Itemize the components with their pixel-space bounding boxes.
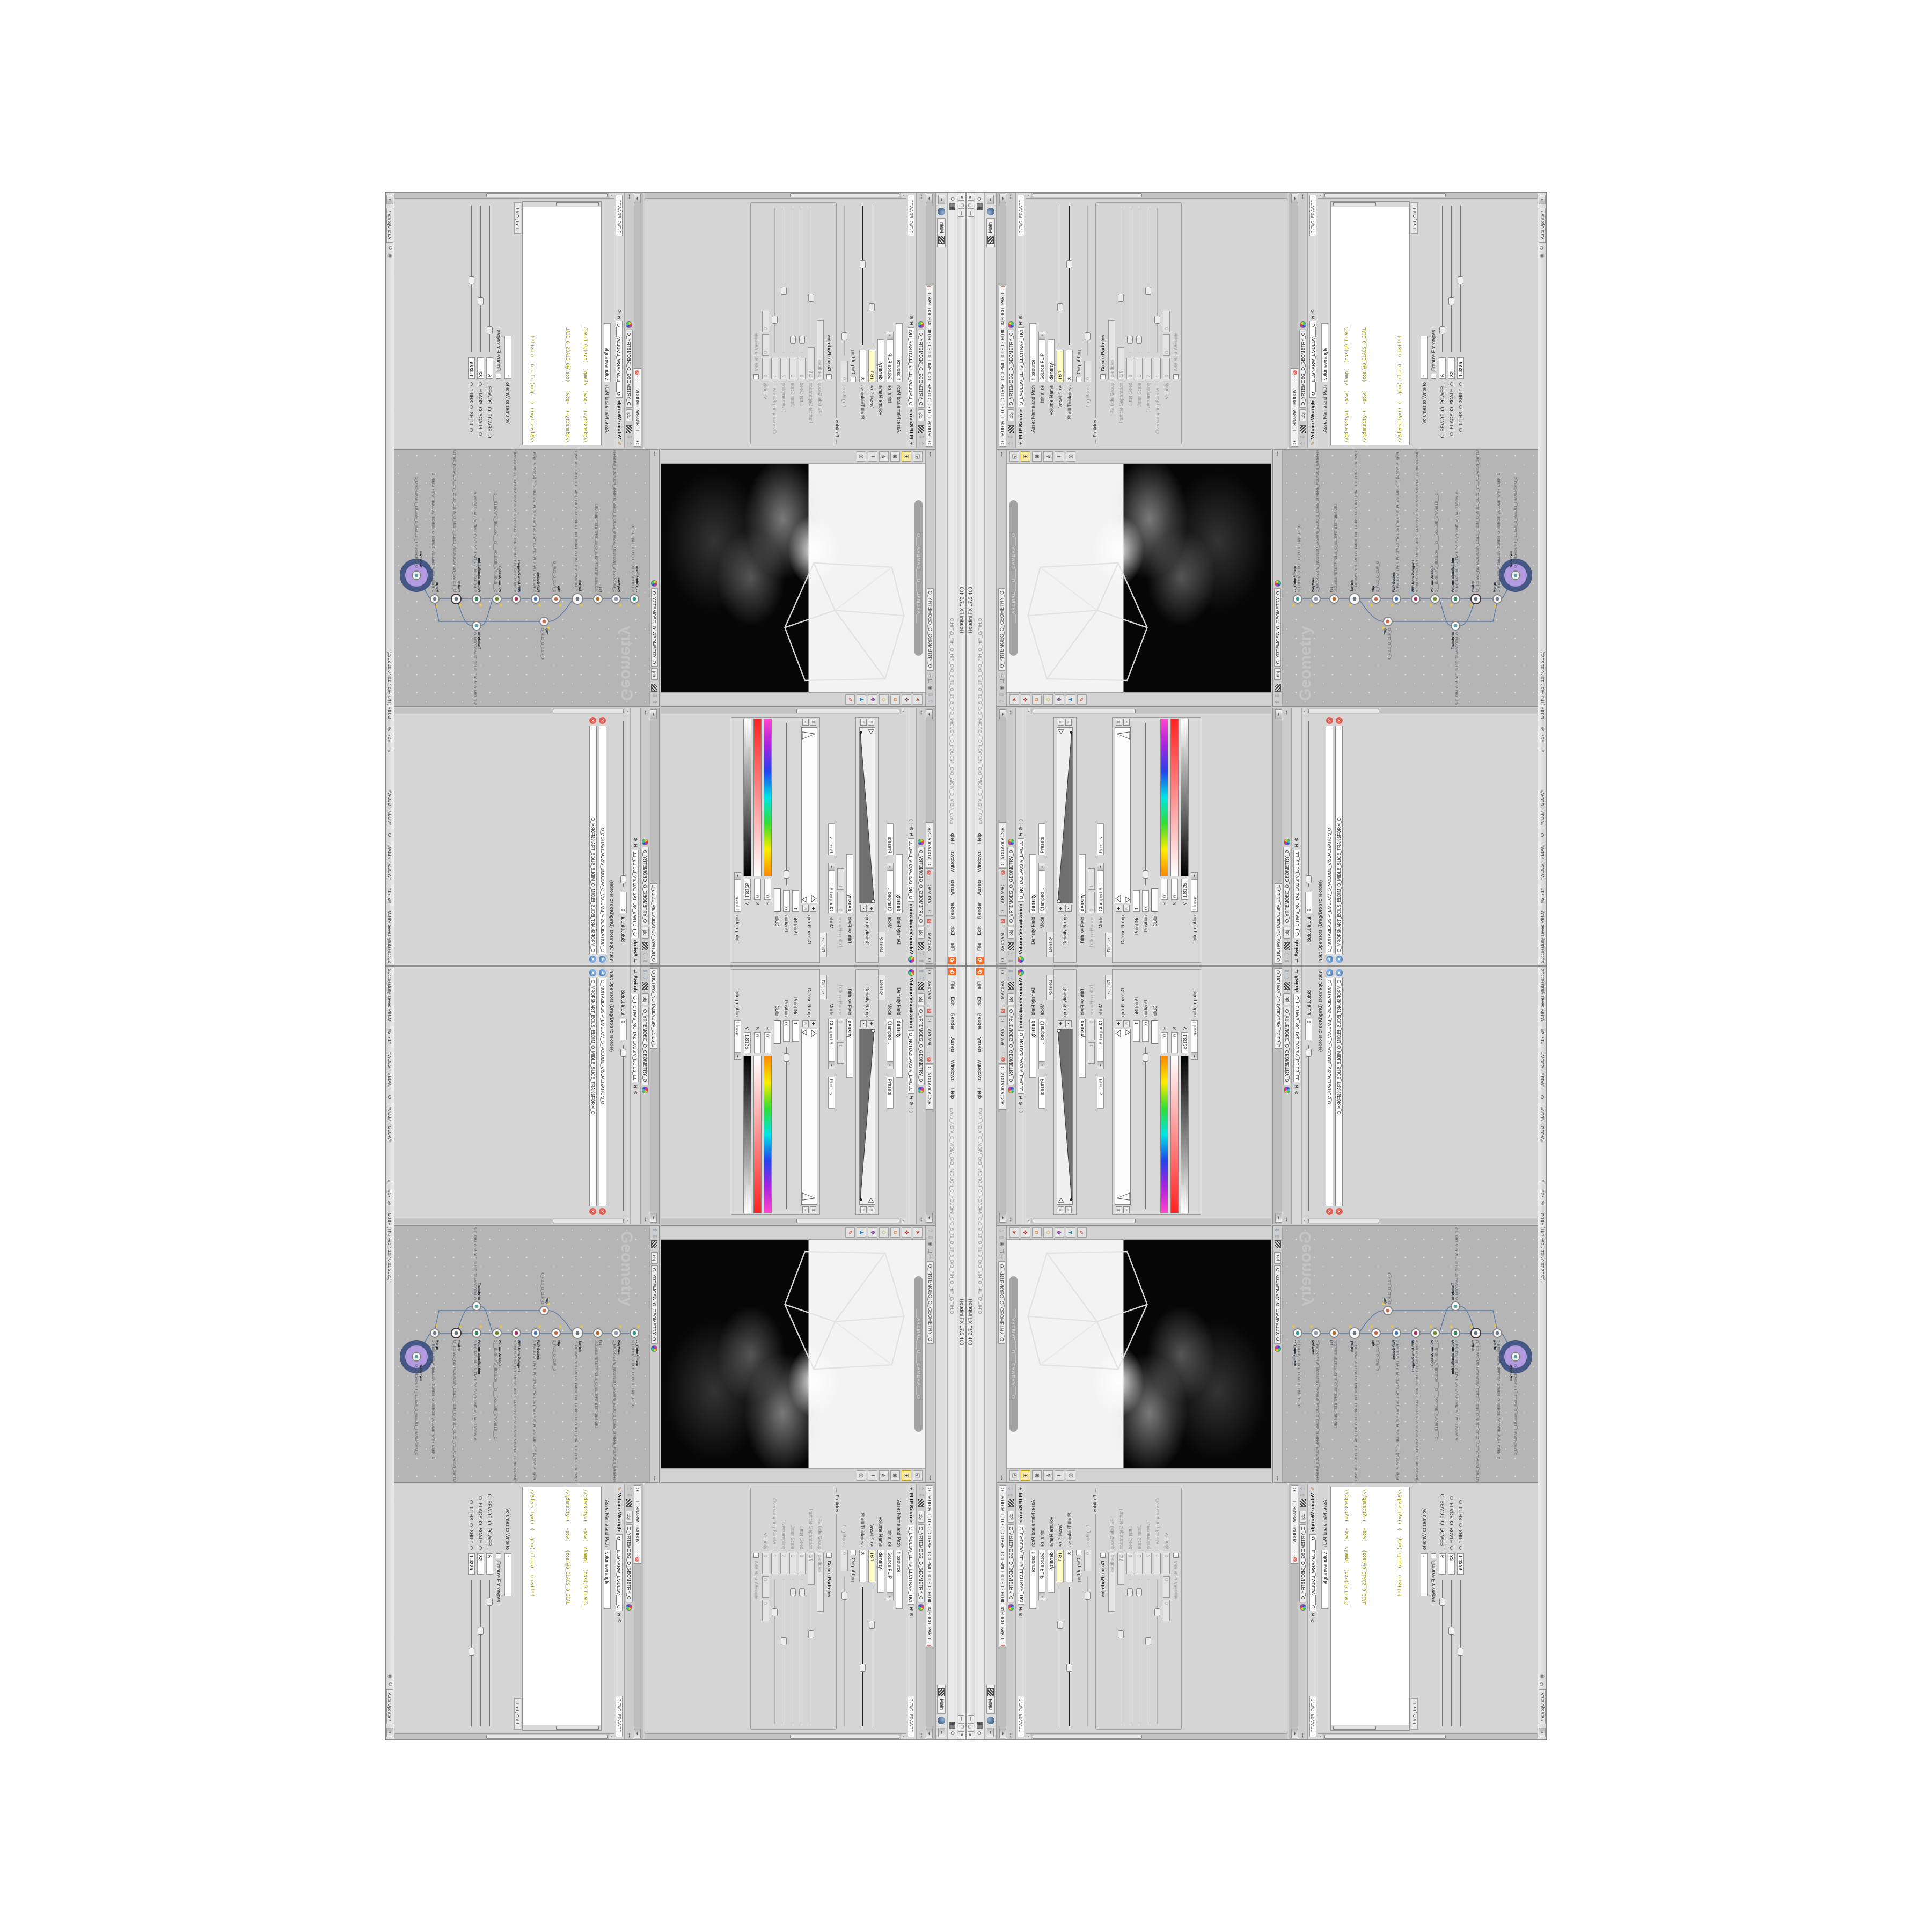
oversampling-bandwidth-input[interactable]: 1 — [771, 358, 778, 379]
jitter-seed-slider[interactable] — [799, 1579, 806, 1724]
ramp-delete-button[interactable]: ✕ — [860, 1020, 867, 1027]
nav-down-icon[interactable]: ⇩ — [626, 435, 633, 440]
close-icon[interactable]: ✕ — [927, 919, 932, 923]
select-input-slider[interactable] — [620, 1045, 627, 1211]
s-input[interactable]: 0 — [1171, 1032, 1178, 1053]
nav-down-icon[interactable]: ⇩ — [1274, 693, 1282, 698]
nav-down-icon[interactable]: ⇩ — [1007, 1492, 1015, 1497]
menu-edit[interactable]: Edit — [977, 923, 983, 939]
color-swatch[interactable] — [774, 1020, 781, 1044]
ramp-flip-button[interactable]: ▽ — [1123, 719, 1130, 726]
menu-assets[interactable]: Assets — [977, 876, 983, 899]
jitter-scale-input[interactable]: 0 — [1136, 358, 1143, 379]
interpolation-dropdown[interactable]: Linear — [1191, 1020, 1198, 1052]
nav-down-icon[interactable]: ⇩ — [626, 1492, 633, 1497]
nav-up-icon[interactable]: ⇧ — [918, 441, 925, 446]
color-swatch[interactable] — [774, 888, 781, 912]
close-button[interactable]: ✕ — [958, 194, 965, 201]
shift-slider[interactable] — [468, 206, 475, 352]
scrollbar[interactable]: ▲ — [645, 193, 906, 199]
light-icon[interactable]: ☀ — [1055, 1470, 1064, 1481]
density-folder-tab[interactable]: Density — [1046, 975, 1053, 1000]
volume-name-input[interactable]: density — [1048, 1550, 1055, 1593]
oversampling-slider[interactable] — [780, 1579, 787, 1724]
info-icon[interactable]: ⓘ — [1018, 1108, 1024, 1113]
point-no-input[interactable]: 1 — [792, 890, 799, 912]
menu-render[interactable]: Render — [949, 1009, 955, 1034]
ramp-expand-button[interactable]: ⊞ — [1116, 1206, 1122, 1213]
oversampling-input[interactable]: 2 — [780, 1553, 787, 1574]
select-tool-icon[interactable]: ➤ — [913, 1227, 923, 1238]
position-slider[interactable] — [1142, 1047, 1149, 1209]
help-icon[interactable]: H — [1310, 1613, 1315, 1617]
fog-boost-input[interactable]: 0 — [1084, 361, 1091, 382]
reorder-left-icon[interactable]: ◀ — [599, 969, 606, 976]
density-ramp-widget[interactable] — [1057, 1029, 1073, 1205]
select-input-field[interactable]: 0 — [620, 1019, 627, 1040]
gear-icon[interactable]: ⚙ — [909, 315, 914, 319]
select-tool-icon[interactable]: ➤ — [1009, 694, 1019, 705]
color-wheel-icon[interactable] — [642, 839, 649, 845]
nav-up-icon[interactable]: ⇧ — [1299, 1486, 1307, 1491]
close-icon[interactable]: ✕ — [927, 1057, 932, 1062]
initialize-dropdown[interactable]: Source FLIP — [1038, 1550, 1045, 1593]
scrollbar[interactable]: ▲ — [1318, 193, 1538, 199]
gear-icon[interactable]: ⚙ — [1310, 309, 1316, 313]
position-input[interactable]: 0 — [1142, 1020, 1149, 1042]
delete-icon[interactable]: ✕ — [1336, 1208, 1343, 1215]
saturation-gradient-bar[interactable] — [753, 719, 762, 876]
nav-down-icon[interactable]: ⇩ — [918, 952, 925, 957]
cube-icon[interactable]: ▢ — [927, 679, 933, 684]
mode-dropdown[interactable]: Clamped R... — [828, 1019, 835, 1062]
particle-group-input[interactable]: particles — [1108, 320, 1115, 379]
op-path-field[interactable]: O_MROFSNART_ECILS_ELDIM_O_MIDLE_SLICE_TR… — [589, 726, 597, 954]
viewport-render[interactable]: ___AREMAC___O___CAMERA___O — [661, 464, 925, 692]
power-input[interactable]: 6 — [1439, 357, 1446, 379]
node-name-field[interactable]: O_HCTIWS_NOITAZILAUSIV_ECILS_EL — [1293, 850, 1300, 938]
breadcrumb[interactable]: O_YRTEMOEG_O_GEOMETRY_O — [927, 588, 934, 671]
menu-windows[interactable]: Windows — [977, 847, 983, 876]
asset-path-field[interactable]: C:/O/O_ERAWTF... — [908, 1696, 915, 1737]
target-icon[interactable]: ✛ — [999, 1255, 1005, 1260]
restore-button[interactable]: ❐ — [968, 202, 974, 209]
position-slider[interactable] — [783, 723, 790, 885]
color-wheel-icon[interactable] — [1008, 321, 1014, 328]
particle-separation-input[interactable]: 1/9 — [1117, 1553, 1124, 1585]
point-no-input[interactable]: 1 — [792, 1020, 799, 1042]
auto-update-dropdown[interactable]: Auto Update▾ — [1539, 208, 1546, 243]
density-folder-tab[interactable]: Density — [879, 932, 885, 957]
nav-up-icon[interactable]: ⇧ — [651, 700, 658, 705]
fog-boost-slider[interactable] — [841, 206, 848, 355]
ramp-flip-button[interactable]: ▽ — [802, 719, 809, 726]
close-button[interactable]: ✕ — [958, 1731, 965, 1738]
pane-splitter-handle[interactable]: ◂▸ — [999, 1729, 1006, 1738]
volume-name-input[interactable]: density — [877, 1550, 884, 1593]
pane-splitter-handle[interactable]: ◂▸ — [999, 194, 1006, 203]
scale-tool-icon[interactable]: ◇ — [879, 1227, 889, 1238]
nav-down-icon[interactable]: ⇩ — [1283, 952, 1291, 957]
jitter-scale-slider[interactable] — [1136, 208, 1143, 353]
v-input[interactable]: 1.8125 — [744, 1032, 751, 1053]
fog-boost-slider[interactable] — [1084, 1577, 1091, 1726]
color-swatch[interactable] — [1151, 888, 1158, 912]
close-icon[interactable]: ✕ — [1293, 1557, 1297, 1562]
menu-windows[interactable]: Windows — [949, 847, 955, 876]
select-input-field[interactable]: 0 — [1305, 892, 1312, 913]
pane-tab-switch[interactable]: O_HCTIWS_NOITAZILAUSIV_ECILS_EL...✕ — [1275, 883, 1282, 964]
scrollbar[interactable] — [523, 1725, 601, 1730]
hue-gradient-bar[interactable] — [764, 719, 772, 876]
op-path-field[interactable]: O_NOITAZILAUSIV_EMULOV_O_VOLUME_VISUALIZ… — [1326, 978, 1333, 1206]
ramp-add-button[interactable]: ✚ — [1058, 905, 1064, 912]
globe-icon[interactable] — [938, 1717, 946, 1724]
ramp-add-button[interactable]: ✚ — [1116, 1020, 1122, 1027]
vex-code-editor[interactable]: //@density=( -pow( clamp( (cos(@O_ELACS_… — [1330, 1487, 1410, 1731]
reorder-left-icon[interactable]: ◀ — [590, 956, 597, 963]
saturation-gradient-bar[interactable] — [1170, 1056, 1179, 1213]
reorder-left-icon[interactable]: ◀ — [599, 956, 606, 963]
paint-tool-icon[interactable]: ✎ — [1077, 694, 1087, 705]
spinner-icon[interactable]: ◂▸ — [828, 1062, 835, 1069]
menu-render[interactable]: Render — [977, 1009, 983, 1034]
pin-icon[interactable]: ⊶ — [927, 1475, 933, 1480]
move-tool-icon[interactable]: ✛ — [902, 694, 911, 705]
position-input[interactable]: 0 — [1142, 890, 1149, 912]
pin-icon[interactable]: ⊶ — [626, 194, 632, 199]
help-icon[interactable]: H — [1294, 844, 1299, 847]
pane-splitter-handle[interactable]: ◂▸ — [1291, 1729, 1298, 1738]
nav-up-icon[interactable]: ⇧ — [1274, 1227, 1282, 1232]
pane-tab-flip[interactable]: O_EMULOV_LEHS_ELCITRAP_TICILPMI_DIULF_O_… — [999, 286, 1006, 447]
gear-icon[interactable]: ⚙ — [1310, 1619, 1316, 1623]
velocity-input-z[interactable]: 0 — [762, 311, 769, 332]
pane-tab-flip[interactable]: O_EMULOV_LEHS_ELCITRAP_TICILPMI_DIULF_O_… — [926, 1485, 933, 1646]
jitter-seed-input[interactable]: 0 — [1126, 358, 1133, 379]
enforce-prototypes-checkbox[interactable] — [1431, 374, 1436, 379]
velocity-input-y[interactable]: 0 — [762, 334, 769, 356]
gear-icon[interactable]: ⚙ — [1018, 1613, 1024, 1617]
pane-tab-wrangle[interactable]: O____ELGNARW_EMULOV____O✕ — [634, 368, 641, 447]
network-chip[interactable]: obj — [626, 1511, 633, 1522]
scrollbar[interactable]: ▲ — [1302, 1218, 1538, 1224]
target-icon[interactable]: ✛ — [999, 673, 1005, 677]
gear-icon[interactable]: ⚙ — [1294, 837, 1300, 841]
network-chip[interactable]: obj — [1274, 668, 1281, 679]
shell-thickness-slider[interactable] — [859, 206, 866, 345]
pin-icon[interactable]: ⊶ — [1284, 710, 1290, 715]
nav-up-icon[interactable]: ⇧ — [927, 1228, 934, 1233]
h-input[interactable]: 0 — [764, 879, 771, 900]
pin-icon[interactable]: ⊶ — [1275, 1476, 1280, 1481]
snap-grid-icon[interactable]: ⊞ — [902, 451, 911, 462]
spinner-icon[interactable]: ◂▸ — [1038, 1593, 1045, 1600]
menu-windows[interactable]: Windows — [949, 1056, 955, 1085]
nav-down-icon[interactable]: ⇩ — [998, 1235, 1006, 1240]
pin-icon[interactable]: ⊶ — [1008, 1217, 1014, 1222]
viewport-render[interactable]: ___AREMAC___O___CAMERA___O — [1007, 1240, 1271, 1468]
shell-thickness-slider[interactable] — [859, 1587, 866, 1726]
node-name-field[interactable]: O_NOITAZILAUSIV_EMULO — [1018, 1030, 1024, 1093]
minimize-button[interactable]: — — [968, 1715, 974, 1722]
presets-button[interactable]: Presets — [1038, 1077, 1045, 1109]
help-icon[interactable]: H — [1018, 833, 1023, 837]
breadcrumb[interactable]: O_YRTEMOEG_O_GEOMETRY_O — [1007, 330, 1014, 408]
voxel-size-input[interactable]: 1/27 — [868, 350, 875, 382]
ramp-flip-button[interactable]: △ — [860, 719, 867, 726]
interpolation-dropdown[interactable]: Linear — [734, 880, 741, 912]
jitter-scale-input[interactable]: 0 — [789, 1553, 796, 1574]
vex-code-editor[interactable]: //@density=( -pow( clamp( (cos(@O_ELACS_… — [1330, 201, 1410, 445]
scrollbar[interactable] — [1331, 202, 1409, 207]
jitter-seed-input[interactable]: 0 — [799, 1553, 806, 1574]
velocity-input-y[interactable]: 0 — [1163, 334, 1170, 356]
jitter-seed-slider[interactable] — [1126, 208, 1133, 353]
pane-splitter-handle[interactable]: ◂▸ — [386, 195, 393, 204]
handles-tool-icon[interactable]: ✥ — [868, 1227, 877, 1238]
delete-icon[interactable]: ✕ — [590, 717, 597, 724]
layout-grid-icon[interactable] — [949, 1722, 955, 1729]
ramp-expand-button[interactable]: ⊞ — [868, 1206, 874, 1213]
handles-tool-icon[interactable]: ✥ — [1055, 694, 1064, 705]
hue-gradient-bar[interactable] — [764, 1056, 772, 1213]
shell-thickness-input[interactable]: 3 — [859, 1550, 866, 1582]
op-path-field[interactable]: O_MROFSNART_ECILS_ELDIM_O_MIDLE_SLICE_TR… — [1335, 978, 1343, 1206]
help-icon[interactable]: H — [1310, 316, 1315, 319]
scale-input[interactable]: 32 — [1448, 357, 1455, 379]
viewport-render[interactable]: ___AREMAC___O___CAMERA___O — [1007, 464, 1271, 692]
light-icon[interactable]: ☀ — [1055, 451, 1064, 462]
pane-tab-visualization[interactable]: O_NOITAZILAUSIV... — [926, 822, 933, 867]
scrollbar[interactable]: ▲ — [394, 193, 614, 199]
pane-splitter-handle[interactable]: ◂▸ — [650, 709, 657, 719]
particle-group-input[interactable]: particles — [817, 1553, 824, 1612]
network-chip[interactable]: obj — [1007, 993, 1014, 1005]
viewport-render[interactable]: ___AREMAC___O___CAMERA___O — [661, 1240, 925, 1468]
power-slider[interactable] — [486, 206, 493, 352]
ramp-delete-button[interactable]: ✕ — [1123, 1020, 1130, 1027]
nav-up-icon[interactable]: ⇧ — [1007, 958, 1015, 963]
wire-mode-icon[interactable]: ◭ — [879, 1470, 889, 1481]
oversampling-bandwidth-input[interactable]: 1 — [771, 1553, 778, 1574]
spinner-icon[interactable]: ◂▸ — [1038, 332, 1045, 339]
close-icon[interactable]: ✕ — [927, 1645, 932, 1646]
help-icon[interactable]: H — [617, 1613, 622, 1617]
scrollbar[interactable]: ▲ — [1026, 1218, 1271, 1224]
spinner-icon[interactable]: ◂▸ — [1038, 863, 1045, 870]
asset-path-field[interactable]: C:/O/O_ERAWTF... — [616, 1696, 623, 1737]
pin-icon[interactable]: ⊶ — [927, 452, 933, 457]
network-chip[interactable]: obj — [1283, 927, 1290, 938]
s-input[interactable]: 0 — [1171, 879, 1178, 900]
nav-up-icon[interactable]: ⇧ — [998, 699, 1006, 704]
paint-tool-icon[interactable]: ✎ — [1077, 1227, 1087, 1238]
scrollbar[interactable]: ▲ — [1026, 193, 1287, 199]
diffuse-range-min[interactable]: 0 — [837, 892, 844, 913]
scale-slider[interactable] — [1448, 1580, 1455, 1726]
scrollbar[interactable]: ▲ — [1318, 1733, 1538, 1739]
diffuse-range-max[interactable]: 1 — [837, 868, 844, 890]
value-gradient-bar[interactable] — [1181, 1056, 1189, 1213]
ramp-expand-button[interactable]: ⊞ — [868, 719, 874, 726]
density-folder-tab[interactable]: Density — [1046, 932, 1053, 957]
nav-up-icon[interactable]: ⇧ — [626, 441, 633, 446]
restore-button[interactable]: ❐ — [958, 1723, 965, 1730]
ramp-delete-button[interactable]: ✕ — [802, 905, 809, 912]
camera-icon[interactable]: ◉ — [927, 1242, 933, 1246]
menu-file[interactable]: File — [949, 977, 955, 993]
op-path-field[interactable]: O_MROFSNART_ECILS_ELDIM_O_MIDLE_SLICE_TR… — [1335, 726, 1343, 954]
voxel-size-input[interactable]: 1/27 — [868, 1550, 875, 1582]
target-icon[interactable]: ✛ — [927, 1255, 933, 1260]
info-icon[interactable]: ⓘ — [1018, 819, 1024, 824]
shade-mode-icon[interactable]: ◉ — [1032, 451, 1042, 462]
layout-grid-icon[interactable] — [977, 203, 983, 210]
gear-icon[interactable]: ⚙ — [633, 1091, 639, 1095]
pin-icon[interactable]: ⊶ — [1275, 451, 1280, 456]
gear-icon[interactable]: ⚙ — [617, 309, 623, 313]
initialize-dropdown[interactable]: Source FLIP — [1038, 339, 1045, 382]
nav-up-icon[interactable]: ⇧ — [626, 1486, 633, 1491]
close-icon[interactable]: ✕ — [635, 370, 640, 375]
volumes-to-write-input[interactable]: * — [1421, 1553, 1428, 1596]
shade-mode-icon[interactable]: ◉ — [890, 1470, 900, 1481]
ramp-delete-button[interactable]: ✕ — [1065, 1020, 1072, 1027]
network-chip[interactable]: obj — [1007, 409, 1014, 421]
nav-up-icon[interactable]: ⇧ — [1283, 969, 1291, 974]
close-icon[interactable]: ✕ — [1001, 870, 1005, 875]
help-icon[interactable]: H — [1018, 321, 1023, 325]
node-name-field[interactable]: O_NOITAZILAUSIV_EMULO — [908, 1030, 915, 1093]
velocity-input-z[interactable]: 0 — [1163, 311, 1170, 332]
pane-splitter-handle[interactable]: ◂▸ — [634, 1729, 641, 1738]
op-path-field[interactable]: O_NOITAZILAUSIV_EMULOV_O_VOLUME_VISUALIZ… — [599, 726, 606, 954]
spinner-icon[interactable]: ◂▸ — [734, 1052, 741, 1060]
gear-icon[interactable]: ⚙ — [633, 837, 639, 841]
diffuse-field-input[interactable]: density — [846, 1019, 853, 1078]
s-input[interactable]: 0 — [754, 879, 761, 900]
breadcrumb[interactable]: O_YRTEMOEG_O_GEOMETRY_O — [1299, 1524, 1306, 1602]
nav-up-icon[interactable]: ⇧ — [998, 1228, 1006, 1233]
globe-icon[interactable] — [938, 208, 946, 215]
network-chip[interactable]: obj — [918, 1511, 925, 1522]
h-input[interactable]: 0 — [1161, 1032, 1168, 1053]
pane-splitter-handle[interactable]: ◂▸ — [999, 709, 1006, 719]
spinner-icon[interactable]: ◂▸ — [887, 332, 894, 339]
pane-tab-camera[interactable]: O___AREMAC__...✕ — [999, 868, 1006, 916]
ramp-expand-button[interactable]: ⊞ — [810, 719, 816, 726]
asset-path-field[interactable]: C:/O/O_ERAWTF... — [1018, 195, 1024, 236]
move-tool-icon[interactable]: ✛ — [1021, 694, 1030, 705]
ramp-add-button[interactable]: ✚ — [1116, 905, 1122, 912]
jitter-scale-input[interactable]: 0 — [1136, 1553, 1143, 1574]
pin-icon[interactable]: ⊶ — [652, 1476, 657, 1481]
position-input[interactable]: 0 — [783, 1020, 790, 1042]
pane-tab-flip[interactable]: O_EMULOV_LEHS_ELCITRAP_TICILPMI_DIULF_O_… — [926, 286, 933, 447]
breadcrumb[interactable]: O_YRTEMOEG_O_GEOMETRY_O — [918, 1007, 925, 1085]
pane-splitter-handle[interactable]: ◂▸ — [650, 1213, 657, 1223]
scrollbar[interactable]: ▲ — [394, 1733, 614, 1739]
menu-help[interactable]: Help — [949, 830, 955, 848]
pin-icon[interactable]: ⊶ — [642, 1217, 648, 1222]
pane-tab-mantra[interactable]: O___ARTNAM__...✕ — [999, 917, 1006, 964]
close-icon[interactable]: ✕ — [1001, 919, 1005, 923]
create-particles-checkbox[interactable] — [827, 374, 832, 379]
camera-lock-icon[interactable]: ◎ — [1066, 1470, 1075, 1481]
nav-down-icon[interactable]: ⇩ — [1007, 975, 1015, 980]
diffuse-range-max[interactable]: 1 — [1088, 868, 1095, 890]
help-icon[interactable]: H — [1018, 1607, 1023, 1611]
vex-code-editor[interactable]: //@density=( -pow( clamp( (cos(@O_ELACS_… — [522, 201, 602, 445]
shell-thickness-input[interactable]: 3 — [1066, 1550, 1073, 1582]
menu-windows[interactable]: Windows — [977, 1056, 983, 1085]
op-path-field[interactable]: O_MROFSNART_ECILS_ELDIM_O_MIDLE_SLICE_TR… — [589, 978, 597, 1206]
network-chip[interactable]: obj — [1283, 993, 1290, 1005]
enforce-prototypes-checkbox[interactable] — [496, 1553, 502, 1558]
spinner-icon[interactable]: ◂▸ — [1038, 1062, 1045, 1069]
ramp-delete-button[interactable]: ✕ — [1123, 905, 1130, 912]
auto-update-dropdown[interactable]: Auto Update▾ — [386, 208, 393, 243]
desktop-selector[interactable]: Main — [986, 218, 995, 247]
nav-up-icon[interactable]: ⇧ — [642, 969, 649, 974]
desktop-selector[interactable]: Main — [938, 1685, 946, 1714]
diffuse-folder-tab[interactable]: Diffuse — [1105, 933, 1112, 957]
voxel-size-slider[interactable] — [868, 1587, 875, 1726]
volumes-to-write-input[interactable]: * — [504, 1553, 511, 1596]
nav-down-icon[interactable]: ⇩ — [651, 1234, 658, 1239]
gear-icon[interactable]: ⚙ — [909, 826, 914, 831]
breadcrumb[interactable]: O_YRTEMOEG_O_GEOMETRY_O — [1007, 1007, 1014, 1085]
pin-icon[interactable]: ⊶ — [1008, 194, 1014, 199]
scale-slider[interactable] — [477, 206, 484, 352]
color-wheel-icon[interactable] — [1275, 1345, 1281, 1352]
move-tool-icon[interactable]: ✛ — [1021, 1227, 1030, 1238]
pin-icon[interactable]: ⊶ — [918, 194, 924, 199]
light-icon[interactable]: ☀ — [868, 451, 877, 462]
menu-edit[interactable]: Edit — [977, 993, 983, 1009]
pose-tool-icon[interactable]: ♟ — [857, 1227, 866, 1238]
network-chip[interactable]: obj — [1007, 1511, 1014, 1522]
pane-splitter-handle[interactable]: ◂▸ — [938, 1728, 945, 1737]
pane-splitter-handle[interactable]: ◂▸ — [926, 709, 933, 719]
position-slider[interactable] — [1142, 723, 1149, 885]
shift-slider[interactable] — [1457, 1580, 1464, 1726]
asset-path-field[interactable]: C:/O/O_ERAWTF... — [1309, 1696, 1316, 1737]
particle-separation-input[interactable]: 1/9 — [1117, 347, 1124, 379]
pin-icon[interactable]: ⊶ — [999, 452, 1005, 457]
nav-down-icon[interactable]: ⇩ — [1299, 1492, 1307, 1497]
pin-icon[interactable]: ⊶ — [918, 1217, 924, 1222]
scrollbar[interactable]: ▲ — [1026, 708, 1271, 714]
velocity-input[interactable]: 0 — [1163, 1553, 1170, 1574]
ramp-delete-button[interactable]: ✕ — [1065, 905, 1072, 912]
density-ramp-widget[interactable] — [859, 1029, 875, 1205]
density-ramp-widget[interactable] — [859, 727, 875, 903]
camera-icon[interactable]: ◉ — [927, 686, 933, 690]
v-input[interactable]: 1.8125 — [744, 879, 751, 900]
nav-down-icon[interactable]: ⇩ — [927, 1235, 934, 1240]
mode-dropdown[interactable]: Clamped R... — [1097, 1019, 1104, 1062]
nav-down-icon[interactable]: ⇩ — [998, 692, 1006, 697]
ramp-add-button[interactable]: ✚ — [810, 1020, 816, 1027]
diffuse-range-max[interactable]: 1 — [837, 1042, 844, 1064]
spinner-icon[interactable]: ◂▸ — [887, 1062, 894, 1069]
oversampling-slider[interactable] — [1145, 1579, 1152, 1724]
info-icon[interactable]: ⓘ — [908, 1108, 915, 1113]
scale-tool-icon[interactable]: ◇ — [1043, 1227, 1053, 1238]
pane-tab-mantra[interactable]: O___ARTNAM__...✕ — [926, 917, 933, 964]
